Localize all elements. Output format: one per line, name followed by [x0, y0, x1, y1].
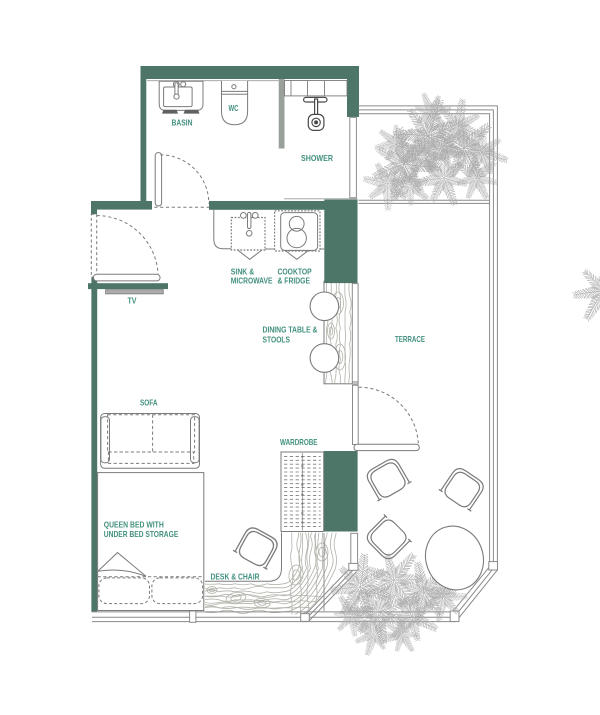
svg-text:QUEEN BED WITH: QUEEN BED WITH: [104, 520, 164, 530]
svg-text:WC: WC: [229, 103, 239, 113]
svg-text:& FRIDGE: & FRIDGE: [278, 276, 311, 286]
svg-text:TERRACE: TERRACE: [395, 334, 425, 344]
svg-text:BASIN: BASIN: [172, 118, 193, 128]
svg-text:WARDROBE: WARDROBE: [280, 437, 318, 447]
svg-text:DINING TABLE &: DINING TABLE &: [263, 325, 318, 335]
svg-text:DESK & CHAIR: DESK & CHAIR: [211, 572, 260, 582]
svg-text:MICROWAVE: MICROWAVE: [231, 276, 273, 286]
svg-text:SHOWER: SHOWER: [301, 153, 333, 163]
svg-text:STOOLS: STOOLS: [263, 334, 291, 344]
svg-text:SOFA: SOFA: [140, 398, 158, 408]
svg-text:UNDER BED STORAGE: UNDER BED STORAGE: [104, 529, 179, 539]
svg-text:TV: TV: [128, 296, 137, 306]
